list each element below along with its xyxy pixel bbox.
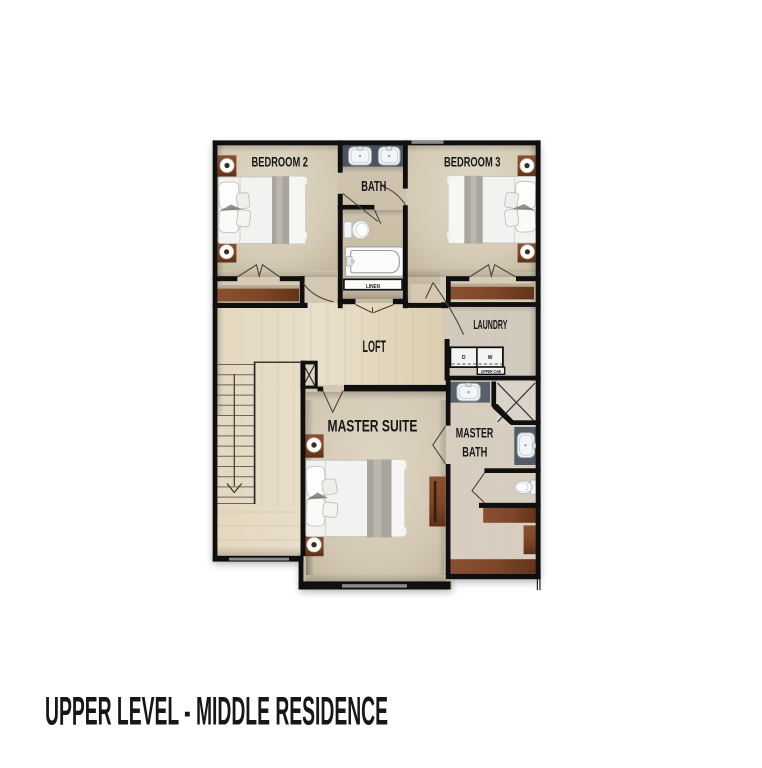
svg-text:BEDROOM 2: BEDROOM 2 [252, 154, 309, 170]
svg-text:MASTER SUITE: MASTER SUITE [328, 418, 418, 436]
svg-text:LINEN: LINEN [366, 284, 380, 290]
svg-text:LOFT: LOFT [363, 337, 387, 356]
svg-text:W: W [488, 355, 493, 361]
svg-text:UPPER CAB: UPPER CAB [481, 369, 501, 375]
svg-text:BATH: BATH [462, 443, 487, 459]
svg-text:UPPER LEVEL - MIDDLE RESIDENCE: UPPER LEVEL - MIDDLE RESIDENCE [45, 690, 388, 734]
svg-text:LAUNDRY: LAUNDRY [473, 317, 507, 332]
svg-text:BEDROOM 3: BEDROOM 3 [444, 154, 501, 170]
svg-text:BATH: BATH [361, 179, 386, 195]
svg-text:D: D [462, 355, 466, 361]
svg-text:MASTER: MASTER [456, 425, 494, 441]
